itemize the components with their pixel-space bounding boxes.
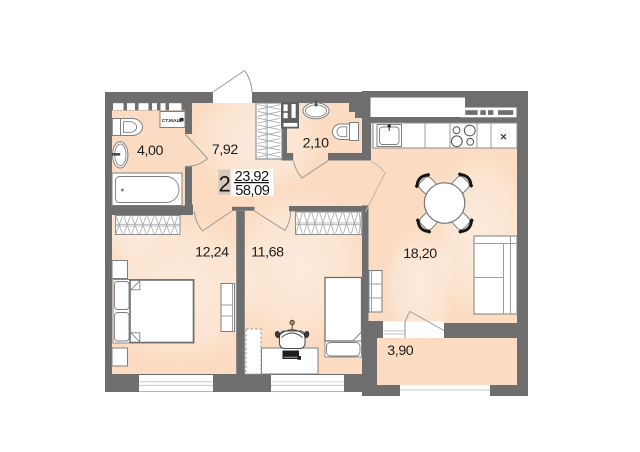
svg-text:18,20: 18,20 xyxy=(403,246,437,262)
svg-text:12,24: 12,24 xyxy=(195,244,229,260)
svg-text:11,68: 11,68 xyxy=(251,244,284,260)
svg-text:СТ.МАШ: СТ.МАШ xyxy=(162,118,182,124)
svg-text:58,09: 58,09 xyxy=(235,183,269,199)
svg-text:4,00: 4,00 xyxy=(137,143,164,159)
svg-text:2,10: 2,10 xyxy=(303,136,330,152)
svg-text:2: 2 xyxy=(219,171,231,196)
svg-text:7,92: 7,92 xyxy=(212,142,239,158)
svg-text:3,90: 3,90 xyxy=(387,343,414,359)
